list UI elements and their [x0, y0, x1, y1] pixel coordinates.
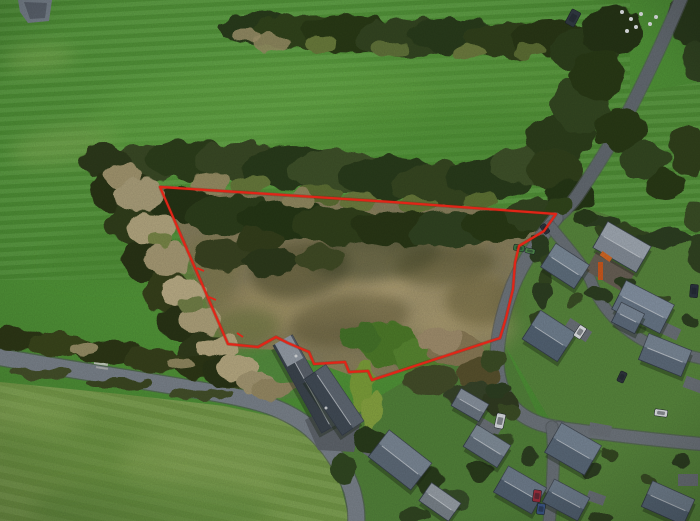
- vignette: [0, 0, 700, 521]
- aerial-photo: [0, 0, 700, 521]
- aerial-photo-frame: [0, 0, 700, 521]
